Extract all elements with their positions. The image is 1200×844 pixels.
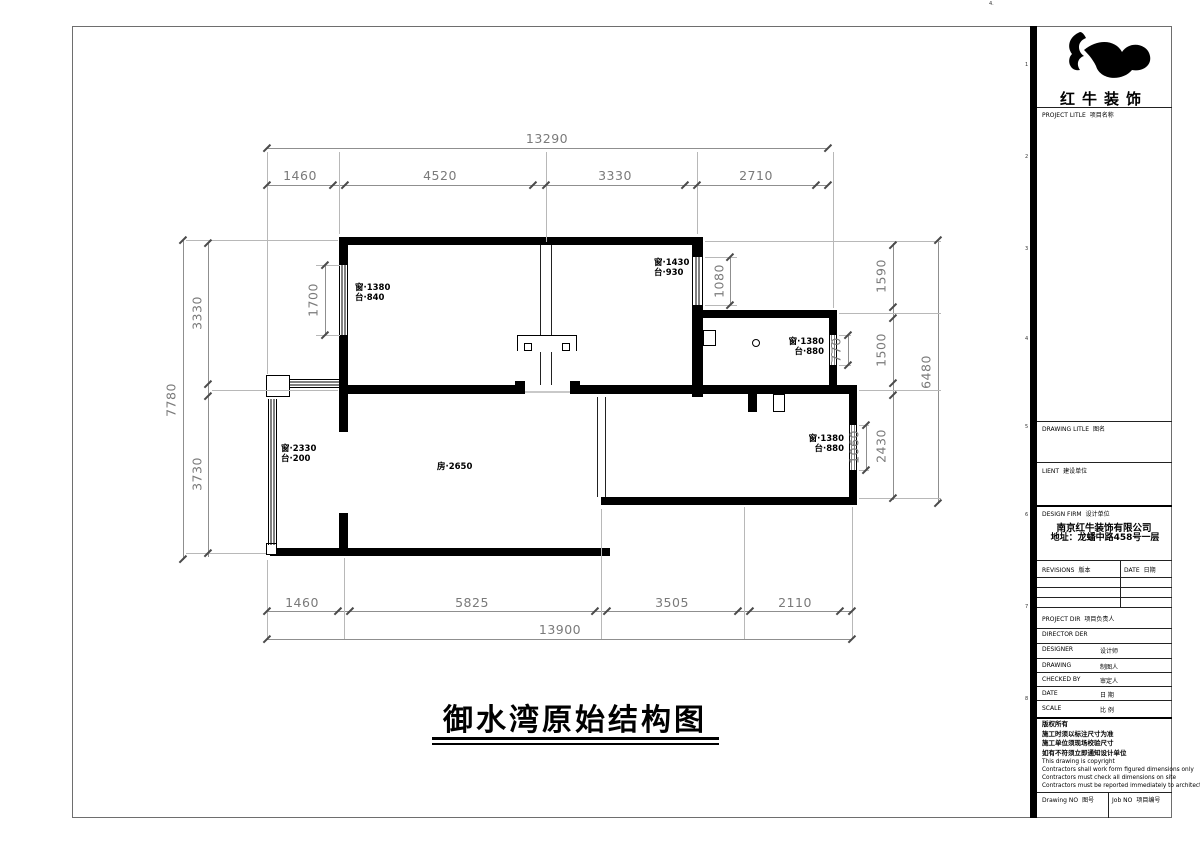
extension-line [601, 509, 602, 639]
label-en: REVISIONS [1042, 567, 1074, 574]
dimension-line [267, 185, 828, 186]
extension-line [186, 553, 266, 554]
checked-by-row: CHECKED BY审定人 [1042, 676, 1166, 683]
dim-right-2: 1500 [874, 333, 889, 367]
titleblock-line [1037, 672, 1172, 673]
copyright-line: 施工单位须现场校验尺寸 [1042, 739, 1200, 749]
dim-top-overall: 13290 [526, 131, 568, 146]
dimension-line [267, 611, 852, 612]
dimension-line [183, 240, 184, 560]
titleblock-line [1037, 717, 1172, 719]
partition-line [551, 245, 552, 335]
wall-segment [692, 305, 703, 397]
label-en: DIRECTOR DER [1042, 631, 1088, 638]
project-dir-label: PROJECT DIR项目负责人 [1042, 614, 1114, 623]
extension-line [744, 507, 745, 639]
titleblock-line [1037, 597, 1172, 598]
drawing-title-label: DRAWING LITLE图名 [1042, 424, 1105, 433]
label-en: DRAWING LITLE [1042, 426, 1089, 433]
wall-segment [570, 381, 580, 394]
client-label: LIENT建设单位 [1042, 466, 1087, 475]
dimension-line [208, 243, 209, 557]
wall-segment [1030, 26, 1037, 818]
extension-line [212, 390, 338, 391]
scale-row: SCALE比 例 [1042, 705, 1166, 712]
label-cn: 日 期 [1100, 690, 1114, 699]
dimension-line [267, 148, 828, 149]
label-en: LIENT [1042, 468, 1059, 475]
partition-line [540, 352, 541, 385]
sheet-edge-mark: 6 [1025, 512, 1028, 518]
dimension-line [893, 243, 894, 500]
dimension-line [730, 257, 731, 305]
wall-segment [270, 548, 610, 556]
copyright-line: This drawing is copyright [1042, 758, 1200, 766]
dim-window-bed1: 1700 [306, 283, 321, 317]
label-en: DRAWING [1042, 662, 1071, 669]
label-cn: 版本 [1078, 567, 1090, 574]
window-label-kitchen: 窗·1380 台·880 [780, 337, 824, 357]
drawing-title: 御水湾原始结构图 [443, 695, 707, 739]
titleblock-line [1037, 577, 1172, 578]
wall-segment [703, 310, 837, 318]
dim-right-3: 2430 [874, 429, 889, 463]
window-height: 窗·2330 [281, 444, 316, 454]
wall-segment [432, 743, 719, 745]
extension-line [316, 335, 340, 336]
dim-left-2: 3730 [190, 457, 205, 491]
partition-line [605, 397, 606, 497]
extension-line [344, 558, 345, 639]
copyright-line: 版权所有 [1042, 720, 1200, 730]
window-height: 窗·1380 [355, 283, 390, 293]
label-en: SCALE [1042, 705, 1061, 712]
label-cn: 项目编号 [1136, 797, 1160, 804]
window-glazing [692, 257, 703, 305]
extension-line [339, 152, 340, 234]
extension-line [546, 152, 547, 242]
extension-line [859, 498, 941, 499]
director-label: DIRECTOR DER [1042, 631, 1088, 638]
design-firm-name: 南京红牛装饰有限公司 [1056, 520, 1151, 534]
window-label-bed1: 窗·1380 台·840 [355, 283, 390, 303]
wall-segment [601, 497, 857, 505]
wall-segment [692, 245, 703, 257]
label-en: DATE [1124, 567, 1140, 574]
label-cn: 项目名称 [1090, 112, 1114, 119]
extension-line [705, 257, 737, 258]
titleblock-line [1037, 792, 1172, 793]
sill-height: 台·880 [800, 444, 844, 454]
label-en: PROJECT DIR [1042, 616, 1080, 623]
dim-bottom-3: 3505 [655, 595, 689, 610]
door-threshold [525, 391, 570, 393]
extension-line [697, 152, 698, 234]
titleblock-line [1037, 607, 1172, 608]
sheet-corner-mark: 4. [989, 1, 994, 7]
wall-segment [829, 318, 837, 335]
wall-segment [580, 385, 703, 394]
sill-height: 台·840 [355, 293, 390, 303]
dim-left-1: 3330 [190, 296, 205, 330]
label-cn: 设计师 [1100, 646, 1118, 655]
dim-right-1: 1590 [874, 259, 889, 293]
dim-left-overall: 7780 [164, 383, 179, 417]
titleblock-line [1037, 560, 1172, 561]
dim-window-bed2: 1080 [712, 264, 727, 298]
label-en: PROJECT LITLE [1042, 112, 1086, 119]
copyright-block: 版权所有 施工时须以标注尺寸为准 施工单位须现场校验尺寸 如有不符须立即通知设计… [1042, 720, 1200, 790]
label-cn: 审定人 [1100, 676, 1118, 685]
window-glazing [339, 265, 348, 335]
dim-top-4: 2710 [739, 168, 773, 183]
copyright-line: 如有不符须立即通知设计单位 [1042, 749, 1200, 759]
dimension-line [325, 265, 326, 335]
bull-logo-icon [1058, 30, 1154, 86]
project-title-label: PROJECT LITLE项目名称 [1042, 110, 1114, 119]
room-height-label: 房·2650 [437, 460, 472, 472]
partition-line [551, 352, 552, 385]
label-en: CHECKED BY [1042, 676, 1080, 683]
extension-line [267, 560, 268, 639]
wall-outline [266, 375, 290, 397]
extension-line [316, 265, 340, 266]
dim-right-overall: 6480 [919, 355, 934, 389]
window-label-room-br: 窗·1380 台·880 [800, 434, 844, 454]
label-en: DESIGN FIRM [1042, 511, 1082, 518]
window-glazing [268, 399, 277, 545]
date-row: DATE日 期 [1042, 690, 1166, 697]
label-cn: 设计单位 [1086, 511, 1110, 518]
extension-line [852, 507, 853, 639]
copyright-line: Contractors must be reported immediately… [1042, 782, 1200, 790]
label-en: Drawing NO [1042, 797, 1078, 804]
copyright-line: Contractors must check all dimensions on… [1042, 774, 1200, 782]
dim-bottom-overall: 13900 [539, 622, 581, 637]
dimension-line [848, 335, 849, 365]
label-cn: 日期 [1144, 567, 1156, 574]
company-logo-name: 红牛装饰 [1060, 88, 1148, 109]
sheet-edge-mark: 1 [1025, 62, 1028, 68]
wall-segment [339, 237, 348, 265]
drawing-no-label: Drawing NO图号 [1042, 795, 1094, 804]
job-no-label: Job NO项目编号 [1112, 795, 1160, 804]
dim-bottom-1: 1460 [285, 595, 319, 610]
wall-outline [562, 343, 570, 351]
sheet-edge-mark: 4 [1025, 336, 1028, 342]
titleblock-line [1037, 643, 1172, 644]
titleblock-line [1037, 462, 1172, 463]
design-firm-address: 地址：龙蟠中路458号一层 [1046, 533, 1164, 545]
window-height: 窗·1430 [654, 258, 689, 268]
label-cn: 制图人 [1100, 662, 1118, 671]
window-label-balcony: 窗·2330 台·200 [281, 444, 316, 464]
titleblock-line [1108, 792, 1109, 818]
design-firm-label: DESIGN FIRM设计单位 [1042, 509, 1110, 518]
dim-bottom-4: 2110 [778, 595, 812, 610]
designer-row: DESIGNER设计师 [1042, 646, 1166, 653]
extension-line [705, 305, 737, 306]
label-en: Job NO [1112, 797, 1132, 804]
sheet-edge-mark: 7 [1025, 604, 1028, 610]
wall-outline [524, 343, 532, 351]
extension-line [839, 313, 941, 314]
copyright-line: 施工时须以标注尺寸为准 [1042, 730, 1200, 740]
sheet-edge-mark: 2 [1025, 154, 1028, 160]
titleblock-line [1037, 700, 1172, 701]
titleblock-line [1037, 505, 1172, 507]
window-height: 窗·1380 [780, 337, 824, 347]
drawing-sheet: 13290 1460 4520 3330 2710 1460 5825 3505… [0, 0, 1200, 844]
sheet-edge-mark: 8 [1025, 696, 1028, 702]
wall-segment [849, 393, 857, 425]
wall-segment [339, 237, 703, 245]
revisions-label: REVISIONS版本 [1042, 565, 1090, 574]
window-label-bed2: 窗·1430 台·930 [654, 258, 689, 278]
dimension-line [267, 639, 852, 640]
label-en: DESIGNER [1042, 646, 1073, 653]
sheet-edge-mark: 3 [1025, 246, 1028, 252]
label-cn: 图号 [1082, 797, 1094, 804]
extension-line [859, 390, 941, 391]
sheet-edge-mark: 5 [1025, 424, 1028, 430]
partition-line [597, 397, 598, 497]
dim-window-kitchen: 770 [829, 337, 844, 362]
sill-height: 台·930 [654, 268, 689, 278]
window-height: 窗·1380 [800, 434, 844, 444]
wall-segment [339, 393, 348, 432]
titleblock-line [1037, 587, 1172, 588]
dim-window-room-br: 1060 [847, 430, 862, 464]
titleblock-line [1037, 421, 1172, 422]
label-cn: 比 例 [1100, 705, 1114, 714]
sill-height: 台·880 [780, 347, 824, 357]
label-en: DATE [1042, 690, 1058, 697]
wall-segment [339, 513, 348, 550]
dim-top-1: 1460 [283, 168, 317, 183]
copyright-line: Contractors shall work form figured dime… [1042, 766, 1200, 774]
dim-bottom-2: 5825 [455, 595, 489, 610]
dimension-line [938, 240, 939, 504]
revisions-date-label: DATE日期 [1124, 565, 1156, 574]
extension-line [705, 241, 941, 242]
titleblock-line [1037, 658, 1172, 659]
wall-outline [703, 330, 716, 346]
label-cn: 项目负责人 [1084, 616, 1114, 623]
titleblock-line [1120, 560, 1121, 607]
titleblock-line [1037, 686, 1172, 687]
sill-height: 台·200 [281, 454, 316, 464]
titleblock-line [1037, 628, 1172, 629]
label-cn: 建设单位 [1063, 468, 1087, 475]
wall-segment [515, 381, 525, 394]
dimension-line [866, 425, 867, 470]
wall-segment [748, 394, 757, 412]
partition-line [540, 245, 541, 335]
window-glazing [290, 379, 339, 388]
extension-line [833, 152, 834, 308]
wall-segment [703, 385, 857, 394]
label-cn: 图名 [1093, 426, 1105, 433]
wall-outline [773, 394, 785, 412]
drafter-row: DRAWING制图人 [1042, 662, 1166, 669]
dim-top-2: 4520 [423, 168, 457, 183]
symbol-circle [752, 339, 760, 347]
wall-segment [339, 385, 515, 394]
dim-top-3: 3330 [598, 168, 632, 183]
